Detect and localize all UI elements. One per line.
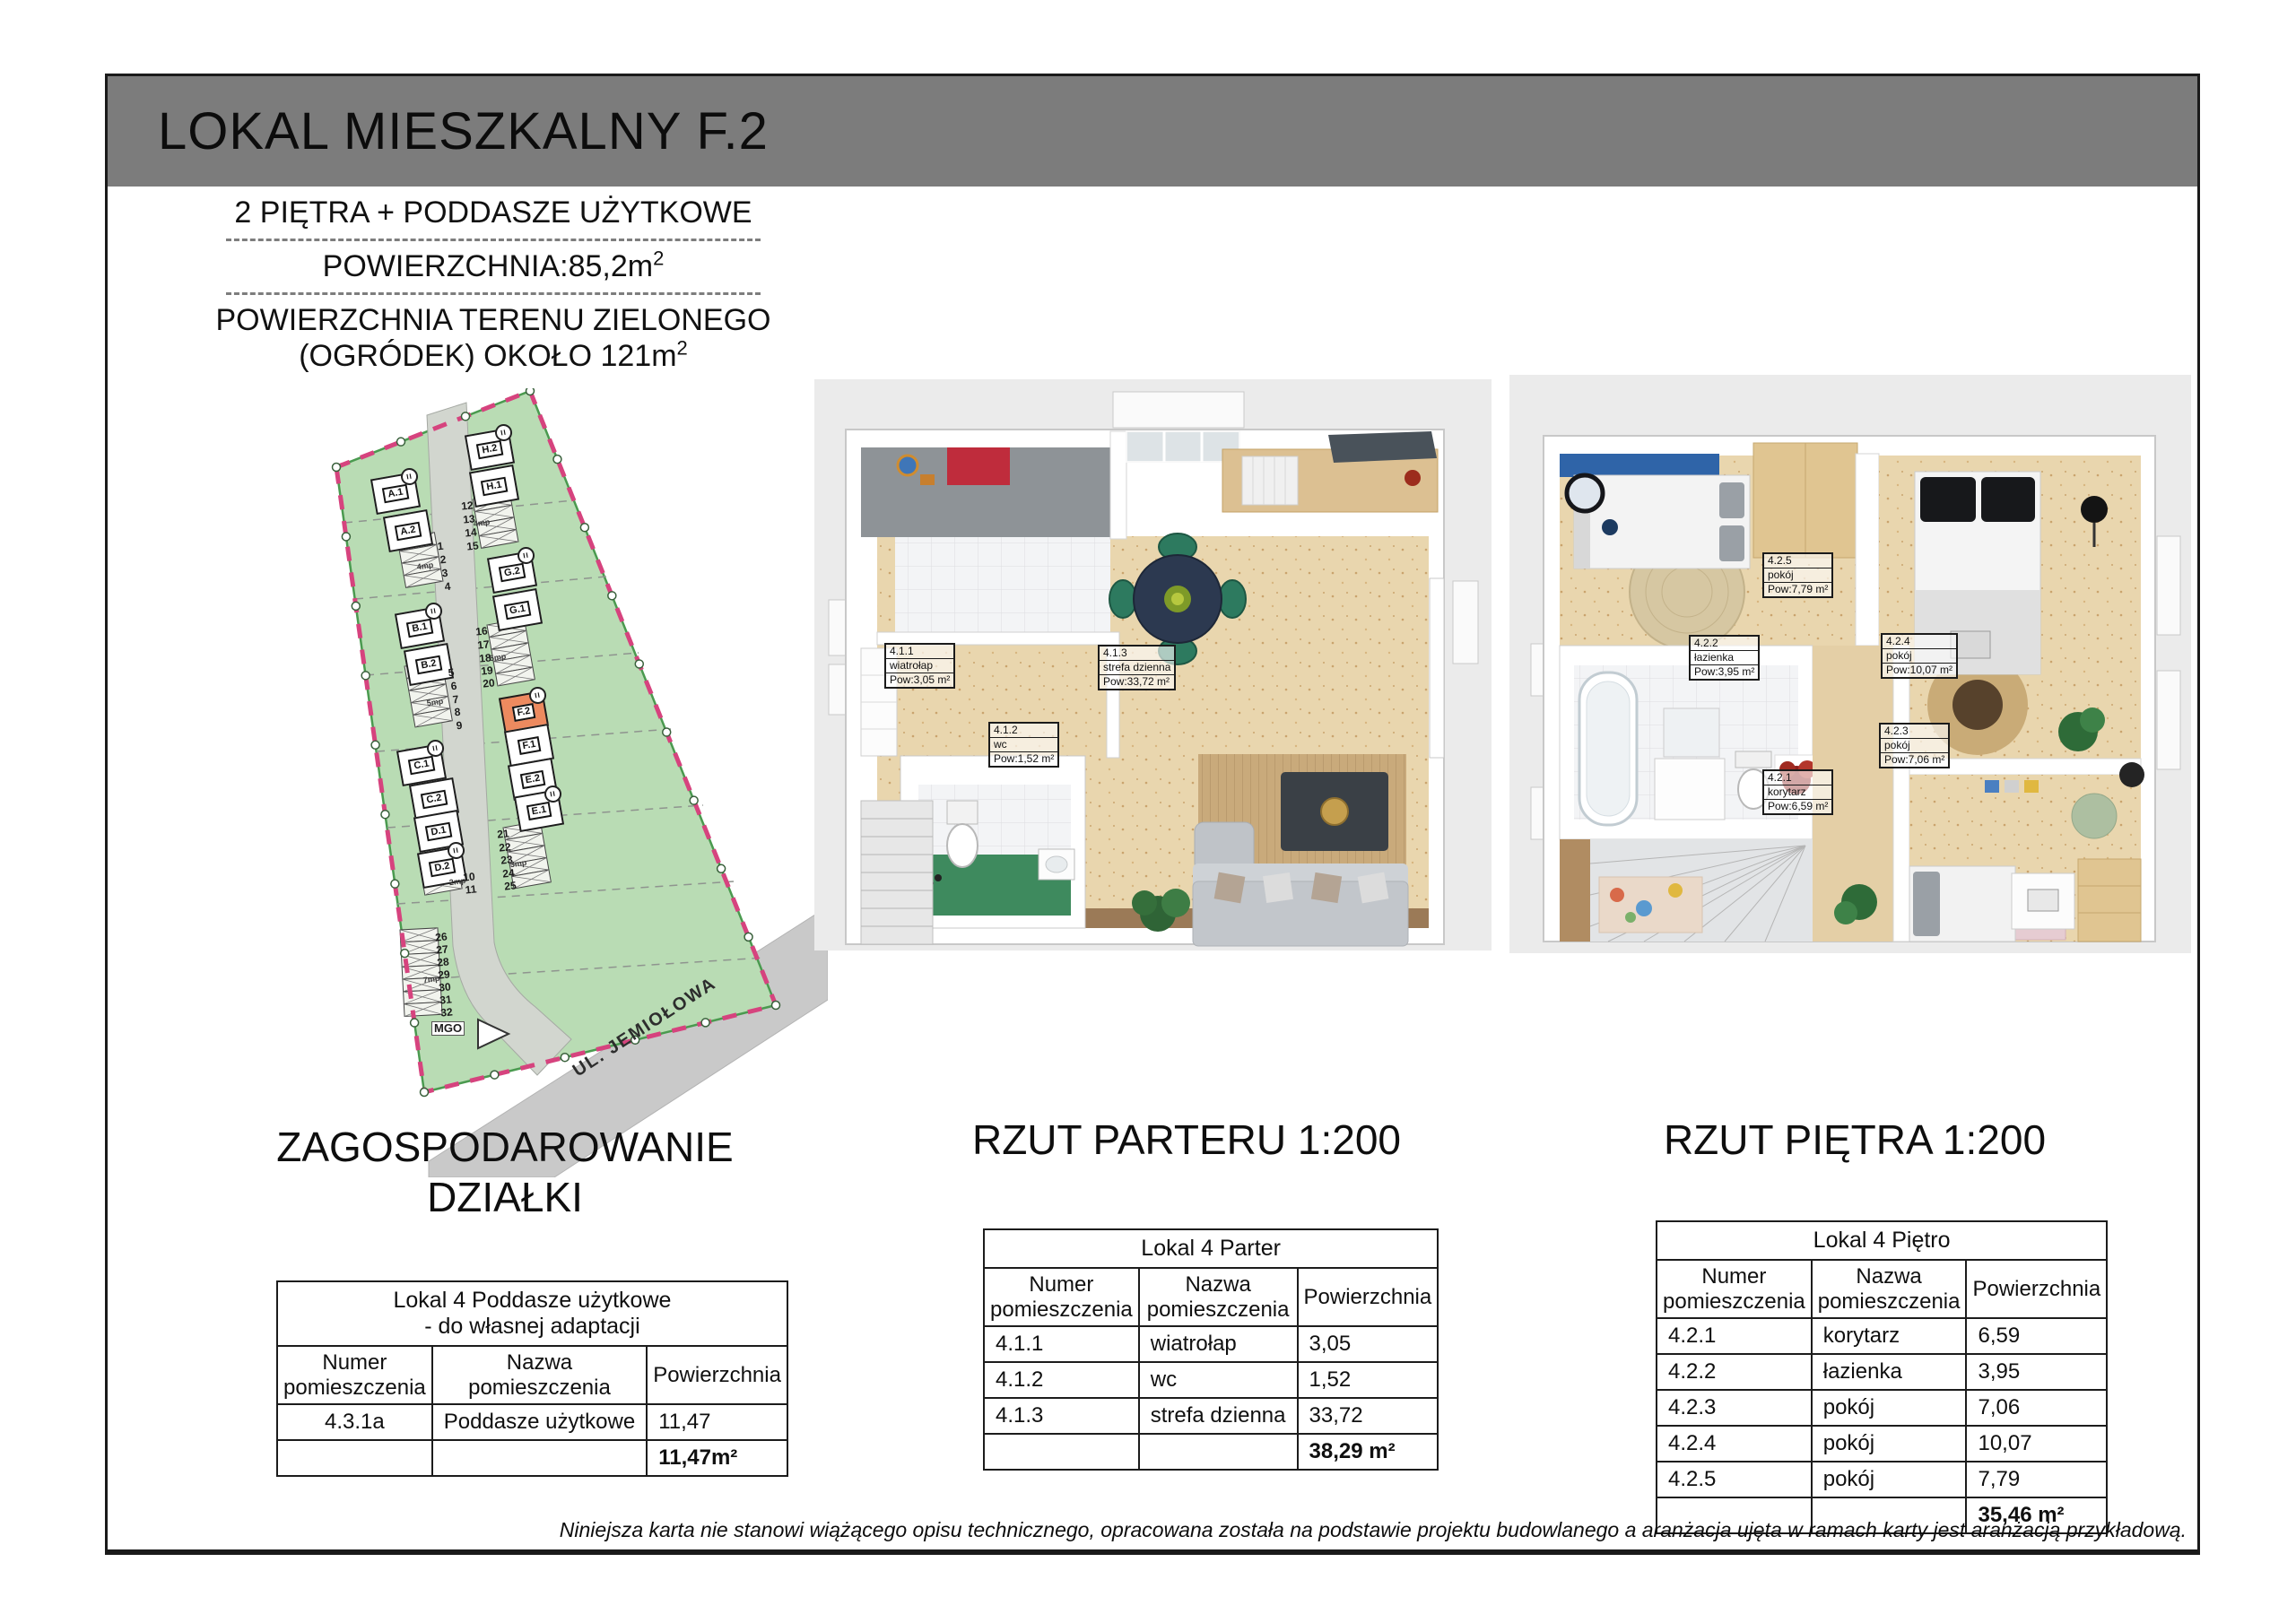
table-header-cell: Powierzchnia	[1966, 1260, 2107, 1318]
table-title: Lokal 4 Parter	[984, 1229, 1438, 1268]
table-header-cell: Powierzchnia	[647, 1346, 787, 1404]
table-empty-cell	[432, 1440, 647, 1476]
area-text: POWIERZCHNIA:85,2m	[323, 249, 653, 283]
table-header-cell: Powierzchnia	[1298, 1268, 1439, 1326]
table-cell: 4.2.1	[1657, 1318, 1812, 1354]
table-cell: 7,79	[1966, 1462, 2107, 1497]
rl-area: Pow:33,72 m²	[1100, 675, 1174, 689]
table-cell: wiatrołap	[1139, 1326, 1298, 1362]
parking-stall-number: 26	[435, 930, 448, 943]
room-label-4.2.1: 4.2.1korytarzPow:6,59 m²	[1762, 769, 1833, 815]
rl-area: Pow:3,05 m²	[886, 673, 953, 687]
rl-num: 4.2.1	[1764, 771, 1831, 785]
area-table: Lokal 4 PiętroNumer pomieszczeniaNazwa p…	[1656, 1220, 2108, 1534]
parking-stall-number: 19	[481, 664, 494, 677]
rl-name: pokój	[1883, 649, 1956, 664]
table-header-cell: Numer pomieszczenia	[984, 1268, 1139, 1326]
parking-stall-number: 20	[483, 676, 496, 690]
table-row: 4.2.3pokój7,06	[1657, 1390, 2107, 1426]
rl-name: korytarz	[1764, 785, 1831, 800]
parking-stall-number: 1	[437, 540, 444, 553]
room-label-4.1.3: 4.1.3strefa dziennaPow:33,72 m²	[1098, 645, 1176, 690]
parking-stall-number: 12	[461, 499, 474, 512]
table-cell: 4.2.5	[1657, 1462, 1812, 1497]
room-label-4.1.1: 4.1.1wiatrołapPow:3,05 m²	[884, 643, 955, 689]
site-caption-line2: DZIAŁKI	[182, 1172, 828, 1222]
first-floor-plan: 4.2.5pokójPow:7,79 m²4.2.2łazienkaPow:3,…	[1509, 375, 2191, 953]
room-label-4.2.5: 4.2.5pokójPow:7,79 m²	[1762, 552, 1833, 598]
parking-count-label: 5mp	[489, 652, 507, 663]
mgo-label: MGO	[431, 1021, 465, 1036]
room-label-4.2.4: 4.2.4pokójPow:10,07 m²	[1881, 633, 1958, 679]
rl-name: pokój	[1764, 568, 1831, 583]
rl-num: 4.1.1	[886, 645, 953, 659]
table-row: 4.1.1wiatrołap3,05	[984, 1326, 1438, 1362]
room-label-4.2.2: 4.2.2łazienkaPow:3,95 m²	[1689, 635, 1760, 681]
table-total-row: 38,29 m²	[984, 1434, 1438, 1470]
table-cell: 4.1.1	[984, 1326, 1139, 1362]
area-table: Lokal 4 ParterNumer pomieszczeniaNazwa p…	[983, 1228, 1439, 1471]
table-cell: pokój	[1812, 1390, 1967, 1426]
table-cell: 1,52	[1298, 1362, 1439, 1398]
table-cell: 3,05	[1298, 1326, 1439, 1362]
site-plan: A.1IIA.2B.1IIB.2C.1IIC.2D.1D.2IIH.2IIH.1…	[182, 388, 828, 1177]
parking-stall-number: 11	[465, 882, 477, 896]
attic-area-table: Lokal 4 Poddasze użytkowe- do własnej ad…	[276, 1280, 711, 1477]
table-row: 4.1.3strefa dzienna33,72	[984, 1398, 1438, 1434]
table-header-cell: Nazwa pomieszczenia	[1812, 1260, 1967, 1318]
parking-stall-number: 27	[436, 942, 449, 956]
parking-count-label: 2mp	[448, 876, 466, 887]
table-total-row: 11,47m²	[277, 1440, 787, 1476]
table-header-cell: Nazwa pomieszczenia	[432, 1346, 647, 1404]
rl-area: Pow:7,06 m²	[1881, 753, 1948, 767]
table-total-value: 11,47m²	[647, 1440, 787, 1476]
rl-area: Pow:1,52 m²	[990, 752, 1057, 766]
summary-block: 2 PIĘTRA + PODDASZE UŻYTKOWE POWIERZCHNI…	[160, 195, 827, 374]
page-title: LOKAL MIESZKALNY F.2	[158, 101, 769, 161]
ground-floor-caption: RZUT PARTERU 1:200	[918, 1115, 1456, 1165]
parking-count-label: 5mp	[426, 697, 444, 707]
table-empty-cell	[984, 1434, 1139, 1470]
ground-floor-room-labels: 4.1.1wiatrołapPow:3,05 m²4.1.2wcPow:1,52…	[814, 379, 1492, 950]
parking-stall-number: 31	[439, 993, 453, 1006]
table-cell: 3,95	[1966, 1354, 2107, 1390]
rl-num: 4.2.4	[1883, 635, 1956, 649]
green-area-superscript: 2	[677, 337, 688, 360]
table-row: 4.3.1aPoddasze użytkowe11,47	[277, 1404, 787, 1440]
rl-name: wc	[990, 738, 1057, 752]
parking-count-label: 3mp	[509, 858, 527, 869]
rl-name: strefa dzienna	[1100, 661, 1174, 675]
area-line: POWIERZCHNIA:85,2m2	[160, 248, 827, 284]
parking-stall-number: 5	[448, 666, 455, 680]
parking-stall-number: 28	[437, 955, 450, 968]
table-cell: 6,59	[1966, 1318, 2107, 1354]
rl-num: 4.2.2	[1691, 637, 1758, 651]
rl-area: Pow:6,59 m²	[1764, 800, 1831, 813]
parking-stall-number: 22	[499, 840, 512, 854]
rl-area: Pow:7,79 m²	[1764, 583, 1831, 596]
table-cell: 4.3.1a	[277, 1404, 432, 1440]
table-empty-cell	[277, 1440, 432, 1476]
table-cell: strefa dzienna	[1139, 1398, 1298, 1434]
table-header-cell: Nazwa pomieszczenia	[1139, 1268, 1298, 1326]
rl-area: Pow:10,07 m²	[1883, 664, 1956, 677]
green-area-line-1: POWIERZCHNIA TERENU ZIELONEGO	[160, 302, 827, 338]
table-total-value: 38,29 m²	[1298, 1434, 1439, 1470]
table-header-cell: Numer pomieszczenia	[277, 1346, 432, 1404]
ground-floor-plan: 4.1.1wiatrołapPow:3,05 m²4.1.2wcPow:1,52…	[814, 379, 1492, 950]
parking-stall-number: 16	[475, 624, 489, 638]
rl-name: pokój	[1881, 739, 1948, 753]
table-cell: 4.1.2	[984, 1362, 1139, 1398]
table-cell: łazienka	[1812, 1354, 1967, 1390]
table-title: Lokal 4 Piętro	[1657, 1221, 2107, 1260]
parking-stall-number: 15	[466, 539, 480, 552]
table-row: 4.2.2łazienka3,95	[1657, 1354, 2107, 1390]
parking-stall-number: 9	[456, 719, 463, 733]
header-bar: LOKAL MIESZKALNY F.2	[108, 76, 2197, 187]
rl-name: wiatrołap	[886, 659, 953, 673]
table-cell: wc	[1139, 1362, 1298, 1398]
table-header-cell: Numer pomieszczenia	[1657, 1260, 1812, 1318]
parking-stall-number: 17	[477, 638, 491, 651]
site-caption-line1: ZAGOSPODAROWANIE	[182, 1122, 828, 1172]
parking-stall-number: 3	[441, 567, 448, 580]
table-cell: 10,07	[1966, 1426, 2107, 1462]
area-table: Lokal 4 Poddasze użytkowe- do własnej ad…	[276, 1280, 788, 1477]
rl-num: 4.1.3	[1100, 647, 1174, 661]
room-label-4.1.2: 4.1.2wcPow:1,52 m²	[988, 722, 1059, 768]
table-cell: Poddasze użytkowe	[432, 1404, 647, 1440]
table-cell: 33,72	[1298, 1398, 1439, 1434]
first-floor-caption: RZUT PIĘTRA 1:200	[1586, 1115, 2124, 1165]
table-empty-cell	[1139, 1434, 1298, 1470]
property-card-page: LOKAL MIESZKALNY F.2 2 PIĘTRA + PODDASZE…	[105, 74, 2200, 1555]
table-row: 4.2.1korytarz6,59	[1657, 1318, 2107, 1354]
rl-num: 4.1.2	[990, 724, 1057, 738]
first-floor-room-labels: 4.2.5pokójPow:7,79 m²4.2.2łazienkaPow:3,…	[1509, 375, 2191, 953]
parking-stall-number: 25	[504, 879, 517, 892]
room-label-4.2.3: 4.2.3pokójPow:7,06 m²	[1879, 723, 1950, 768]
first-floor-area-table: Lokal 4 PiętroNumer pomieszczeniaNazwa p…	[1656, 1220, 2054, 1534]
parking-stall-number: 2	[439, 553, 447, 567]
table-cell: korytarz	[1812, 1318, 1967, 1354]
ground-floor-area-table: Lokal 4 ParterNumer pomieszczeniaNazwa p…	[983, 1228, 1381, 1471]
table-cell: 4.2.4	[1657, 1426, 1812, 1462]
street-name-label: UL. JEMIOŁOWA	[570, 974, 721, 1082]
rl-num: 4.2.3	[1881, 725, 1948, 739]
parking-stall-number: 32	[440, 1005, 454, 1019]
table-cell: 4.2.2	[1657, 1354, 1812, 1390]
table-row: 4.2.5pokój7,79	[1657, 1462, 2107, 1497]
area-superscript: 2	[653, 247, 664, 270]
rl-num: 4.2.5	[1764, 554, 1831, 568]
dashed-divider	[226, 239, 761, 241]
parking-count-label: 4mp	[473, 517, 491, 528]
table-cell: pokój	[1812, 1426, 1967, 1462]
table-cell: 4.2.3	[1657, 1390, 1812, 1426]
parking-stall-number: 4	[444, 580, 451, 594]
storeys-line: 2 PIĘTRA + PODDASZE UŻYTKOWE	[160, 195, 827, 230]
table-row: 4.1.2wc1,52	[984, 1362, 1438, 1398]
parking-stall-number: 7	[452, 693, 459, 707]
green-area-text: (OGRÓDEK) OKOŁO 121m	[299, 339, 676, 373]
table-cell: 7,06	[1966, 1390, 2107, 1426]
site-plan-caption: ZAGOSPODAROWANIE DZIAŁKI	[182, 1122, 828, 1222]
parking-stall-number: 6	[450, 680, 457, 693]
table-cell: 4.1.3	[984, 1398, 1139, 1434]
green-area-line-2: (OGRÓDEK) OKOŁO 121m2	[160, 338, 827, 374]
rl-name: łazienka	[1691, 651, 1758, 665]
table-row: 4.2.4pokój10,07	[1657, 1426, 2107, 1462]
table-cell: 11,47	[647, 1404, 787, 1440]
table-title: Lokal 4 Poddasze użytkowe- do własnej ad…	[277, 1281, 787, 1346]
parking-stall-number: 8	[454, 706, 461, 719]
site-annotations-layer: UL. JEMIOŁOWA 12345678910111213141516171…	[182, 388, 828, 1177]
dashed-divider	[226, 292, 761, 295]
disclaimer-text: Niniejsza karta nie stanowi wiążącego op…	[560, 1518, 2187, 1542]
parking-stall-number: 21	[497, 827, 510, 840]
rl-area: Pow:3,95 m²	[1691, 665, 1758, 679]
parking-count-label: 4mp	[416, 560, 434, 571]
table-cell: pokój	[1812, 1462, 1967, 1497]
